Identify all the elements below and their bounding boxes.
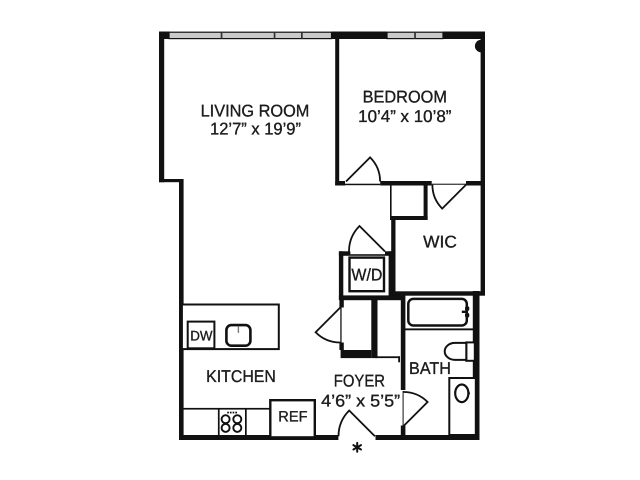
- svg-text:BATH: BATH: [409, 359, 451, 378]
- svg-text:BEDROOM: BEDROOM: [363, 87, 447, 106]
- svg-text:LIVING ROOM: LIVING ROOM: [201, 101, 310, 120]
- svg-text:W/D: W/D: [351, 266, 382, 285]
- svg-text:10’4” x 10’8”: 10’4” x 10’8”: [358, 107, 452, 126]
- svg-text:KITCHEN: KITCHEN: [206, 367, 276, 386]
- svg-text:4’6” x 5’5”: 4’6” x 5’5”: [321, 392, 400, 411]
- svg-text:DW: DW: [190, 328, 213, 344]
- svg-text:REF: REF: [278, 408, 307, 425]
- svg-text:WIC: WIC: [423, 233, 457, 252]
- svg-text:12’7” x 19’9”: 12’7” x 19’9”: [210, 120, 301, 139]
- svg-text:FOYER: FOYER: [334, 371, 385, 390]
